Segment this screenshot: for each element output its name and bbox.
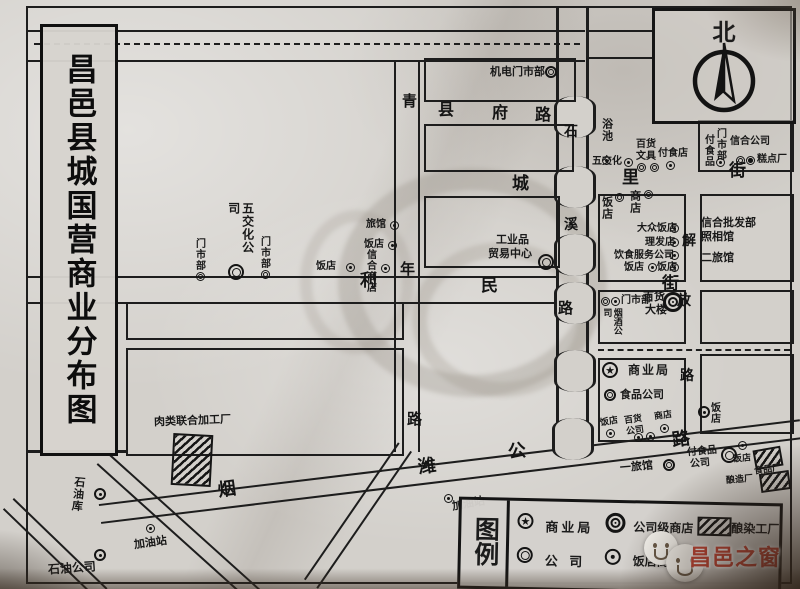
company-icon xyxy=(604,389,616,401)
shop-icon xyxy=(624,158,633,167)
shop-icon xyxy=(716,158,725,167)
poi-label: 糕点厂 xyxy=(757,154,787,166)
poi-label: 饭店 xyxy=(733,452,752,464)
street-char: 路 xyxy=(407,412,422,427)
poi-label: 商店 xyxy=(628,190,641,220)
city-block xyxy=(424,58,576,102)
poi-label: 烟酒公司 xyxy=(602,308,623,338)
company-icon xyxy=(517,547,533,563)
compass-needle-icon xyxy=(689,37,759,115)
road-top-right xyxy=(588,30,652,59)
legend-title: 图例 xyxy=(464,502,504,581)
legend-item-label: 酿染工厂 xyxy=(731,519,779,537)
street-char: 烟 xyxy=(217,479,237,499)
bridge xyxy=(552,418,594,460)
street-char: 潍 xyxy=(417,456,437,476)
poi-label: 饭店 xyxy=(708,402,720,430)
shop-icon xyxy=(606,429,615,438)
city-block xyxy=(126,302,404,340)
poi-label: 百货 xyxy=(636,139,656,151)
shop-icon xyxy=(381,264,390,273)
shop-icon xyxy=(611,297,620,306)
poi-label: 信合公司 xyxy=(730,136,770,148)
legend-divider xyxy=(505,501,509,587)
poi-label: 信合商店 xyxy=(364,249,376,299)
street-char: 县 xyxy=(438,103,454,119)
street-char: 路 xyxy=(558,301,573,316)
shop-icon xyxy=(738,441,747,450)
company-icon xyxy=(196,272,205,281)
river-char: 石 xyxy=(564,124,578,138)
city-block xyxy=(700,290,794,344)
shop-icon xyxy=(666,161,675,170)
company-icon xyxy=(601,297,610,306)
shop-icon xyxy=(390,221,399,230)
legend-item-label: 商业局 xyxy=(545,516,593,536)
shop-icon xyxy=(648,263,657,272)
company-store-icon xyxy=(663,459,675,471)
scanned-map-photo: 青 年 路 县 府 路 城 里 街 利 民 路 街 解 放 路 石 溪 烟 潍 … xyxy=(0,0,800,589)
street-char: 青 xyxy=(402,94,417,109)
company-icon xyxy=(538,254,554,270)
poi-label: 百货 xyxy=(643,291,665,304)
poi-label: 饭店 xyxy=(624,262,644,274)
bridge xyxy=(554,234,596,276)
poi-label: 二旅馆 xyxy=(701,252,734,265)
poi-label: 浴池 xyxy=(600,118,613,152)
company-icon xyxy=(261,270,270,279)
company-icon xyxy=(637,163,646,172)
factory-icon xyxy=(171,433,214,487)
watermark-text: 昌邑之窗 xyxy=(689,540,781,572)
poi-label: 门市部 xyxy=(193,238,205,274)
poi-label: 饭店 xyxy=(316,261,336,273)
company-store-icon xyxy=(746,156,755,165)
poi-label: 机电门市部 xyxy=(490,66,545,79)
street-char: 街 xyxy=(729,162,746,179)
map-title-box: 昌邑县城国营商业分布图 xyxy=(40,24,118,456)
poi-label: 公司 xyxy=(690,457,711,470)
poi-label: 门市部 xyxy=(258,236,270,272)
poi-label: 信合批发部 xyxy=(701,217,756,230)
company-icon xyxy=(545,66,557,78)
company-icon xyxy=(644,190,653,199)
street-char: 府 xyxy=(492,106,508,122)
east-lane xyxy=(598,349,790,351)
shop-icon xyxy=(94,549,106,561)
city-block xyxy=(424,124,574,172)
shop-icon xyxy=(146,524,155,533)
shop-icon xyxy=(388,241,397,250)
poi-label: 五交化 xyxy=(592,156,622,168)
poi-label: 贸易中心 xyxy=(488,248,532,261)
street-char: 街 xyxy=(662,275,679,292)
map-title: 昌邑县城国营商业分布图 xyxy=(57,53,102,427)
bureau-icon xyxy=(517,513,533,529)
company-icon xyxy=(615,193,624,202)
street-char: 里 xyxy=(622,169,639,186)
poi-label: 工业品 xyxy=(496,234,529,247)
poi-label: 付食品 xyxy=(702,134,714,174)
city-block xyxy=(126,348,404,456)
company-store-icon xyxy=(663,292,683,312)
poi-label: 饭店 xyxy=(600,196,613,226)
street-char: 年 xyxy=(400,262,415,277)
street-char: 解 xyxy=(682,233,696,247)
shop-icon xyxy=(670,263,679,272)
shop-icon xyxy=(346,263,355,272)
company-store-icon xyxy=(605,513,625,533)
bridge xyxy=(554,166,596,208)
poi-label: 旅馆 xyxy=(366,219,386,231)
shop-icon xyxy=(94,488,106,500)
shop-icon xyxy=(646,432,655,441)
bureau-icon xyxy=(602,362,618,378)
street-char: 公 xyxy=(507,441,527,461)
shop-icon xyxy=(670,224,679,233)
street-char: 民 xyxy=(481,277,498,294)
poi-label: 五交化公司 xyxy=(226,202,254,266)
shop-icon xyxy=(605,549,621,565)
company-icon xyxy=(650,163,659,172)
shop-icon xyxy=(670,251,679,260)
company-icon xyxy=(736,156,745,165)
bridge xyxy=(554,350,596,392)
shop-icon xyxy=(634,433,643,442)
poi-label: 饮食服务公司 xyxy=(614,250,674,262)
legend-item-label: 公 司 xyxy=(544,550,586,570)
shop-icon xyxy=(670,238,679,247)
factory-icon xyxy=(697,517,731,537)
poi-label: 付食店 xyxy=(658,148,688,160)
poi-label: 文具 xyxy=(636,151,656,163)
shop-icon xyxy=(660,424,669,433)
company-icon xyxy=(228,264,244,280)
poi-label: 照相馆 xyxy=(701,231,734,244)
street-char: 城 xyxy=(512,175,529,192)
street-char: 路 xyxy=(680,368,694,382)
poi-label: 肉类联合加工厂 xyxy=(154,414,231,429)
river-char: 溪 xyxy=(564,217,578,231)
poi-label: 食品公司 xyxy=(620,389,664,402)
street-char: 路 xyxy=(535,108,551,124)
compass-box: 北 xyxy=(652,8,796,124)
poi-label: 商业局 xyxy=(628,364,670,378)
